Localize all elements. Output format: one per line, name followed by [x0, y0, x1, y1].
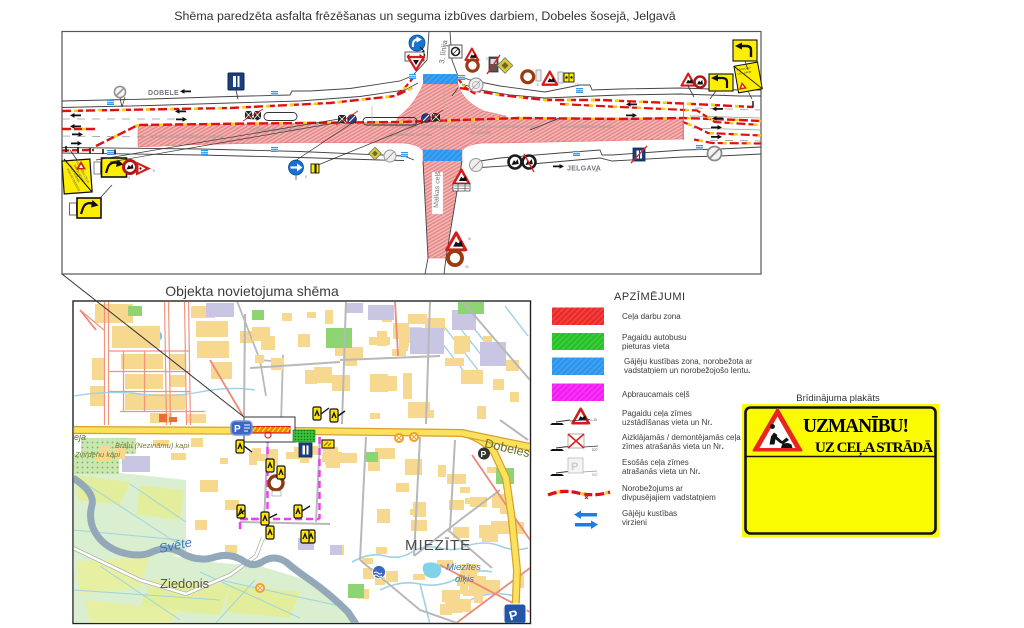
svg-text:3: 3: [128, 176, 130, 180]
svg-text:un izbūvēt: un izbūvēt: [470, 130, 491, 135]
svg-text:7: 7: [723, 93, 725, 97]
svg-text:Gājēju kustības zona, norobežo: Gājēju kustības zona, norobežota ar: [624, 357, 753, 366]
svg-text:Gājēju kustības: Gājēju kustības: [622, 509, 677, 518]
svg-text:DOBELE: DOBELE: [148, 90, 179, 97]
svg-text:5: 5: [305, 175, 307, 179]
svg-text:P: P: [571, 461, 578, 473]
svg-text:jaunu asfaltbetona segumu: jaunu asfaltbetona segumu: [559, 124, 615, 129]
svg-text:P: P: [481, 449, 487, 459]
svg-text:uzstādīšanas vieta un Nr.: uzstādīšanas vieta un Nr.: [622, 418, 712, 427]
svg-text:6: 6: [537, 83, 539, 87]
svg-text:Esošās ceļa zīmes: Esošās ceļa zīmes: [622, 458, 689, 467]
svg-text:Zvirdēnu kapi: Zvirdēnu kapi: [74, 450, 120, 459]
svg-text:15: 15: [575, 83, 579, 87]
svg-text:Miezītes: Miezītes: [446, 562, 481, 573]
svg-text:APZĪMĒJUMI: APZĪMĒJUMI: [614, 291, 686, 303]
svg-text:Apbraucamais ceļš: Apbraucamais ceļš: [622, 390, 690, 399]
svg-text:UZ CEĻA STRĀDĀ: UZ CEĻA STRĀDĀ: [815, 440, 933, 456]
svg-text:pieturas vieta: pieturas vieta: [622, 342, 670, 351]
svg-text:Shēma paredzēta asfalta frēzēš: Shēma paredzēta asfalta frēzēšanas un se…: [174, 9, 676, 23]
svg-text:/4: /4: [595, 169, 598, 173]
svg-text:Brīdinājuma plakāts: Brīdinājuma plakāts: [796, 393, 880, 404]
svg-text:UZMANĪBU!: UZMANĪBU!: [803, 416, 909, 437]
svg-text:eja: eja: [74, 432, 86, 442]
svg-text:atrašanās vieta un Nr.: atrašanās vieta un Nr.: [622, 467, 700, 476]
svg-text:Nofrēzēt esošo asfaltbetona se: Nofrēzēt esošo asfaltbetona segumu: [150, 134, 224, 139]
svg-text:2: 2: [486, 57, 488, 61]
svg-text:1-15: 1-15: [590, 418, 597, 422]
svg-text:vadstatņiem un norobežojošo le: vadstatņiem un norobežojošo lentu.: [624, 366, 750, 375]
svg-text:/8: /8: [468, 237, 471, 241]
svg-text:30: 30: [465, 265, 469, 269]
svg-text:537: 537: [592, 473, 598, 477]
svg-text:MIEZĪTE: MIEZĪTE: [405, 537, 471, 554]
svg-text:divpusējajiem vadstatņiem: divpusējajiem vadstatņiem: [622, 493, 716, 502]
svg-text:Ziedonis: Ziedonis: [160, 576, 210, 591]
svg-text:Brāļu (Nezināmu) kapi: Brāļu (Nezināmu) kapi: [115, 441, 190, 450]
svg-text:Pagaidu autobusu: Pagaidu autobusu: [622, 333, 687, 342]
svg-text:zīmes atrašanās vieta un Nr.: zīmes atrašanās vieta un Nr.: [622, 442, 724, 451]
svg-text:Norobežojums ar: Norobežojums ar: [622, 484, 683, 493]
svg-text:Pagaidu ceļa zīmes: Pagaidu ceļa zīmes: [622, 409, 692, 418]
svg-text:Objekta novietojuma shēma: Objekta novietojuma shēma: [165, 283, 339, 299]
svg-text:527: 527: [592, 448, 598, 452]
svg-text:P: P: [234, 424, 241, 435]
svg-text:virzieni: virzieni: [622, 518, 647, 527]
svg-text:8: 8: [153, 169, 155, 173]
svg-text:Aizklājamās / demontējamās ceļ: Aizklājamās / demontējamās ceļa: [622, 433, 741, 442]
svg-text:dīķis: dīķis: [455, 574, 474, 585]
svg-text:Ceļa darbu zona: Ceļa darbu zona: [622, 312, 681, 321]
